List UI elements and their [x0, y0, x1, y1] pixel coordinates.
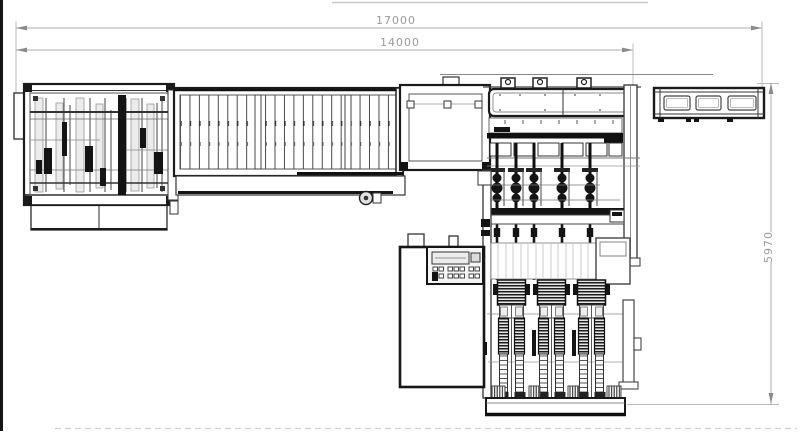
dim-arrow-right — [751, 26, 762, 31]
outfeed-unit — [654, 88, 764, 122]
filling-head — [573, 280, 610, 398]
dimension-machine-depth: 5970 — [627, 83, 779, 405]
dim-label-17000: 17000 — [376, 14, 416, 27]
slat-conveyor — [168, 88, 405, 214]
right-lower-leg — [623, 300, 634, 384]
lifting-lug — [533, 78, 547, 88]
panel-button[interactable] — [471, 253, 480, 262]
lifting-lug — [577, 78, 591, 88]
dim-arrow-left — [16, 26, 27, 31]
dim-arrow-left — [16, 48, 27, 53]
conveyor-foot — [170, 201, 178, 214]
main-crossbar — [487, 133, 623, 139]
dim-label-5970: 5970 — [762, 231, 775, 263]
filling-machine — [477, 78, 641, 415]
partition-panels — [491, 243, 609, 279]
right-side-panel — [596, 238, 630, 284]
left-machine — [14, 83, 175, 230]
control-cabinet — [400, 234, 484, 387]
conveyor-slats — [180, 95, 396, 169]
valve-manifold — [490, 143, 622, 156]
dim-arrow-top — [769, 83, 774, 94]
panel-dark-key[interactable] — [432, 272, 438, 281]
right-lower-foot — [619, 382, 638, 389]
cad-drawing: 17000 14000 5970 — [0, 0, 800, 437]
control-panel — [427, 247, 483, 284]
filling-head — [493, 280, 530, 398]
dim-arrow-bottom — [769, 393, 774, 404]
filling-head — [533, 280, 570, 398]
lifting-lug — [501, 78, 515, 88]
dim-arrow-right — [622, 48, 633, 53]
carriage-rail — [483, 208, 624, 215]
dim-label-14000: 14000 — [380, 36, 420, 49]
